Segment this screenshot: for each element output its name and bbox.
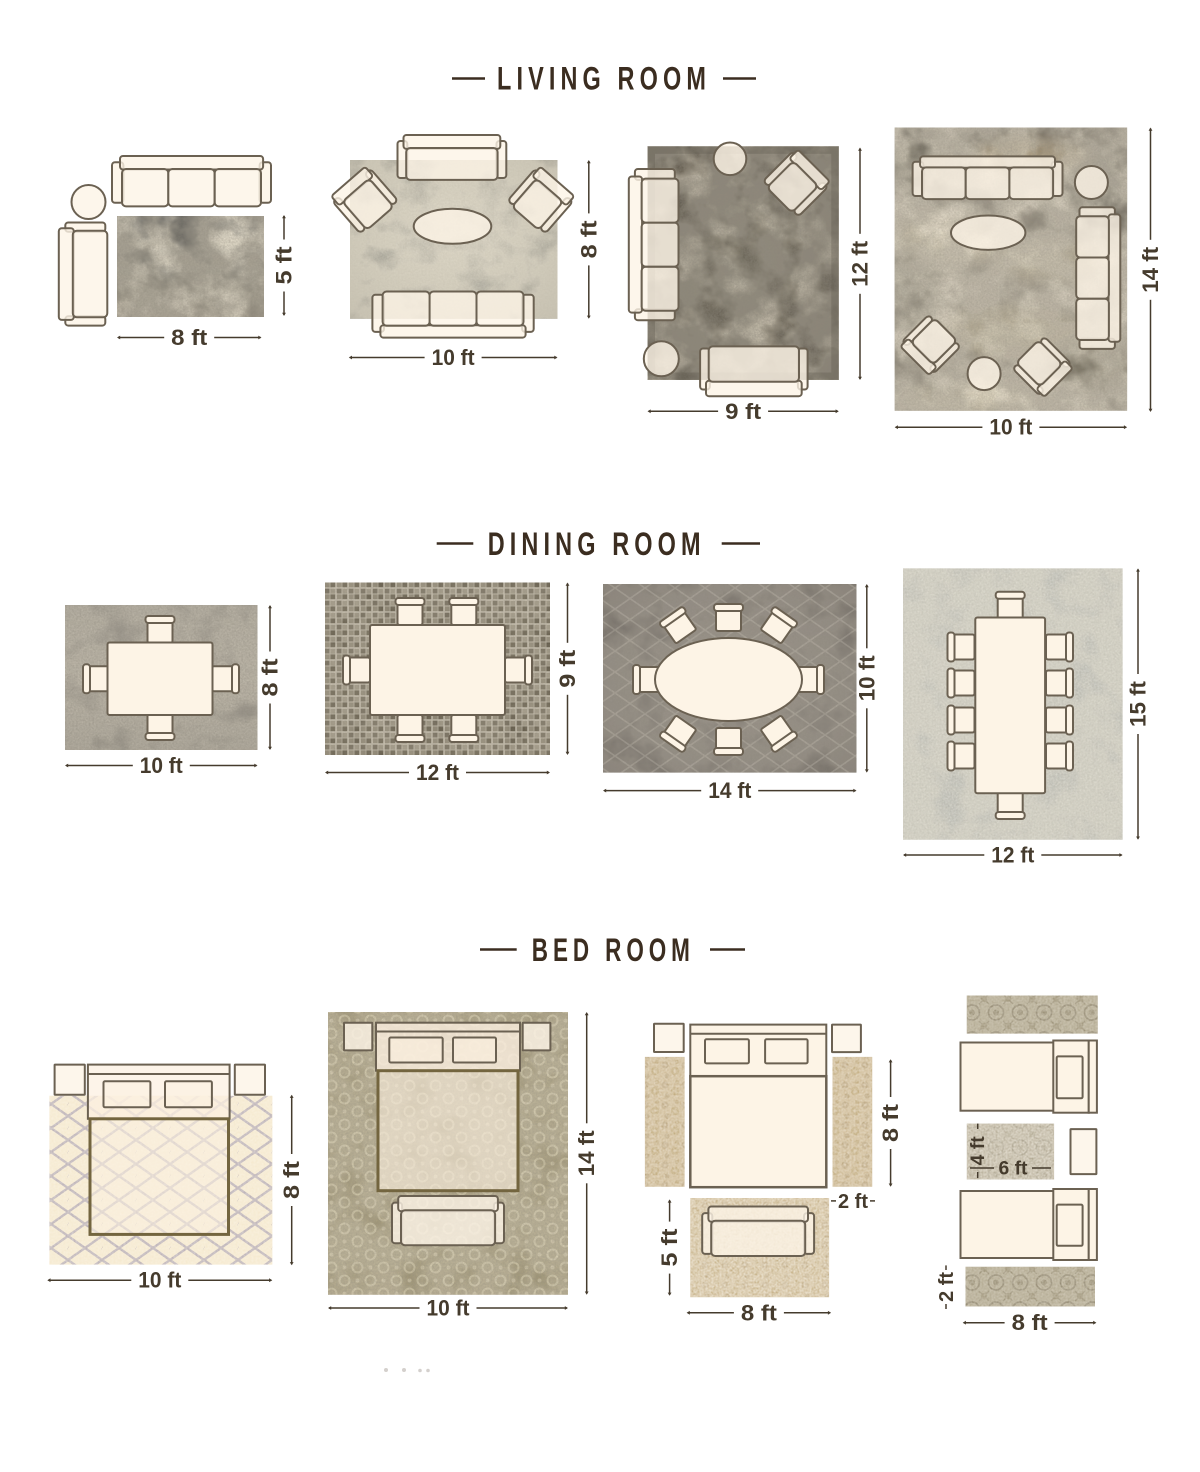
svg-text:8 ft: 8 ft — [741, 1300, 778, 1325]
svg-text:8 ft: 8 ft — [1012, 1310, 1049, 1335]
svg-text:4 ft: 4 ft — [968, 1136, 989, 1166]
svg-text:10 ft: 10 ft — [854, 655, 879, 702]
svg-text:10 ft: 10 ft — [138, 1268, 181, 1293]
svg-text:10 ft: 10 ft — [140, 753, 183, 778]
svg-text:6 ft: 6 ft — [999, 1159, 1029, 1180]
svg-text:10 ft: 10 ft — [432, 345, 475, 370]
svg-text:10 ft: 10 ft — [989, 415, 1032, 440]
svg-text:12 ft: 12 ft — [848, 240, 873, 287]
svg-text:10 ft: 10 ft — [427, 1296, 470, 1321]
svg-text:9 ft: 9 ft — [725, 399, 762, 424]
svg-text:2 ft: 2 ft — [838, 1191, 868, 1213]
svg-text:5 ft: 5 ft — [272, 246, 297, 285]
svg-text:8 ft: 8 ft — [258, 658, 283, 697]
svg-text:12 ft: 12 ft — [416, 760, 459, 785]
svg-text:BED ROOM: BED ROOM — [532, 932, 695, 968]
svg-text:8 ft: 8 ft — [878, 1103, 903, 1142]
svg-text:14 ft: 14 ft — [574, 1130, 599, 1177]
svg-text:9 ft: 9 ft — [555, 649, 580, 688]
svg-text:14 ft: 14 ft — [1138, 246, 1163, 293]
svg-text:5 ft: 5 ft — [657, 1228, 682, 1267]
svg-text:8 ft: 8 ft — [171, 325, 208, 350]
svg-text:12 ft: 12 ft — [991, 843, 1034, 868]
svg-text:2 ft: 2 ft — [936, 1272, 958, 1302]
svg-text:8 ft: 8 ft — [279, 1160, 304, 1199]
svg-text:8 ft: 8 ft — [576, 220, 601, 259]
svg-text:14 ft: 14 ft — [708, 778, 751, 803]
svg-text:15 ft: 15 ft — [1126, 680, 1151, 727]
svg-text:DINING ROOM: DINING ROOM — [488, 526, 706, 562]
svg-text:LIVING ROOM: LIVING ROOM — [497, 61, 711, 97]
